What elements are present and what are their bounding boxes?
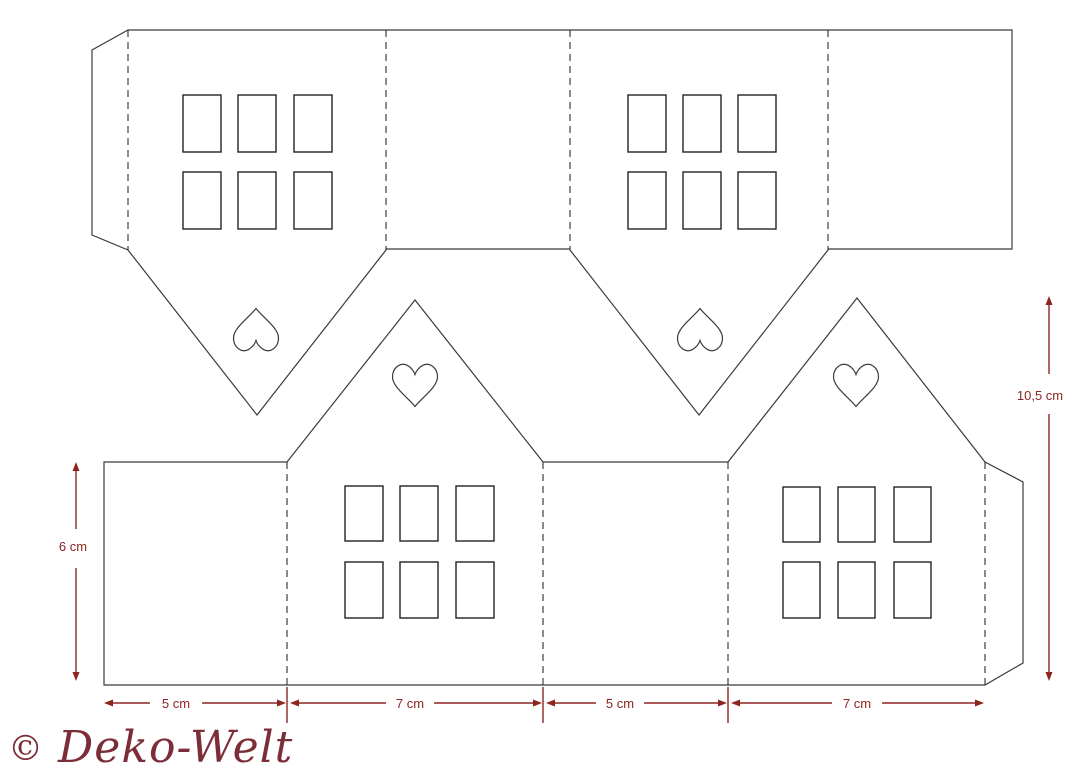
bottom-strip [104,298,1023,685]
watermark: © Deko-Welt [8,722,293,771]
arrow-down-icon [1046,672,1053,681]
window-cutout [838,487,875,542]
dimension-left-height: 6 cm [59,462,87,681]
house-template-diagram: 6 cm 10,5 cm 5 cm 7 cm 5 cm [0,0,1085,771]
heart-cutout [678,309,723,351]
dimension-label-width-2: 7 cm [396,696,424,711]
window-cutout [294,172,332,229]
heart-cutout [393,364,438,406]
window-cutout [683,95,721,152]
window-cutout [738,172,776,229]
heart-cutout [834,364,879,406]
window-cutout [683,172,721,229]
heart-cutout [234,309,279,351]
window-cutout [183,172,221,229]
dimension-label-left-height: 6 cm [59,539,87,554]
window-grid-gable-wall-4 [783,487,931,618]
window-cutout [238,172,276,229]
arrow-right-icon [277,700,286,707]
arrow-right-icon [718,700,727,707]
window-cutout [456,562,494,618]
window-grid-gable-wall-3 [345,486,494,618]
arrow-right-icon [533,700,542,707]
window-grid-gable-wall-1 [183,95,332,229]
top-strip [92,30,1012,415]
top-strip-outline [92,30,1012,415]
window-grid-gable-wall-2 [628,95,776,229]
copyright-icon: © [8,729,43,769]
dimension-label-width-4: 7 cm [843,696,871,711]
dimension-label-right-height: 10,5 cm [1017,388,1063,403]
window-cutout [294,95,332,152]
window-cutout [894,562,931,618]
arrow-left-icon [104,700,113,707]
arrow-down-icon [73,672,80,681]
dimension-right-height: 10,5 cm [1017,296,1063,681]
arrow-up-icon [1046,296,1053,305]
arrow-up-icon [73,462,80,471]
window-cutout [183,95,221,152]
arrow-left-icon [546,700,555,707]
window-cutout [400,562,438,618]
window-cutout [894,487,931,542]
window-cutout [400,486,438,541]
arrow-right-icon [975,700,984,707]
dimension-label-width-1: 5 cm [162,696,190,711]
window-cutout [456,486,494,541]
window-cutout [783,562,820,618]
arrow-left-icon [290,700,299,707]
bottom-strip-outline [104,298,1023,685]
dimension-label-width-3: 5 cm [606,696,634,711]
window-cutout [238,95,276,152]
dimension-bottom-widths: 5 cm 7 cm 5 cm 7 cm [104,687,984,723]
window-cutout [345,562,383,618]
arrow-left-icon [731,700,740,707]
window-cutout [738,95,776,152]
watermark-brand: Deko-Welt [57,722,293,771]
window-cutout [628,95,666,152]
window-cutout [783,487,820,542]
window-cutout [628,172,666,229]
window-cutout [345,486,383,541]
window-cutout [838,562,875,618]
